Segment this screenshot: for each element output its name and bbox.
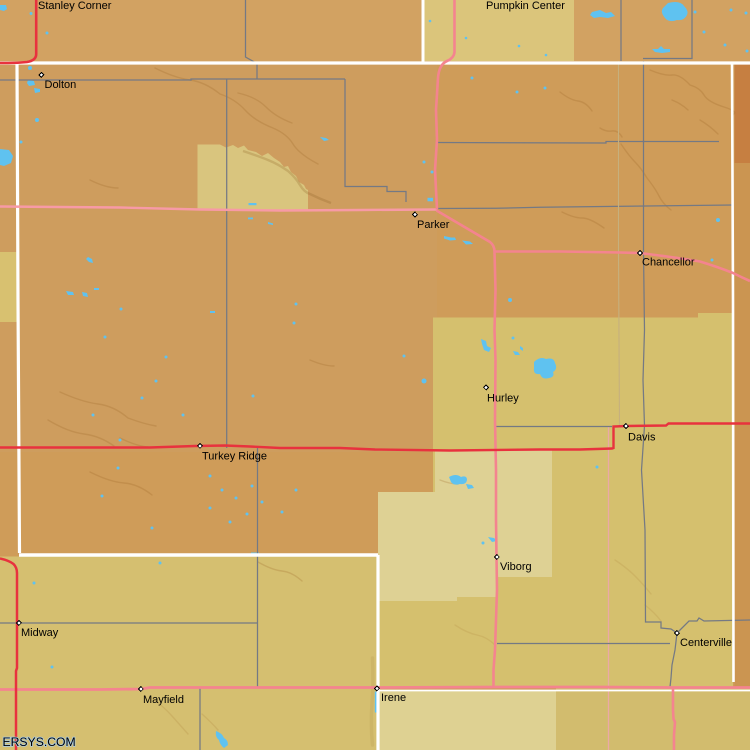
svg-text:Viborg: Viborg — [500, 561, 532, 573]
svg-text:Chancellor: Chancellor — [642, 257, 695, 269]
svg-text:Parker: Parker — [417, 219, 450, 231]
svg-text:Mayfield: Mayfield — [143, 694, 184, 706]
svg-text:ERSYS.COM: ERSYS.COM — [3, 735, 76, 749]
svg-text:Centerville: Centerville — [680, 637, 732, 649]
svg-text:Pumpkin Center: Pumpkin Center — [486, 0, 565, 12]
svg-text:Irene: Irene — [381, 692, 406, 704]
svg-text:Turkey Ridge: Turkey Ridge — [202, 451, 267, 463]
svg-text:Midway: Midway — [21, 627, 59, 639]
svg-text:Stanley Corner: Stanley Corner — [38, 0, 112, 12]
svg-text:Dolton: Dolton — [45, 79, 77, 91]
svg-text:Hurley: Hurley — [487, 393, 519, 405]
svg-text:Davis: Davis — [628, 432, 656, 444]
